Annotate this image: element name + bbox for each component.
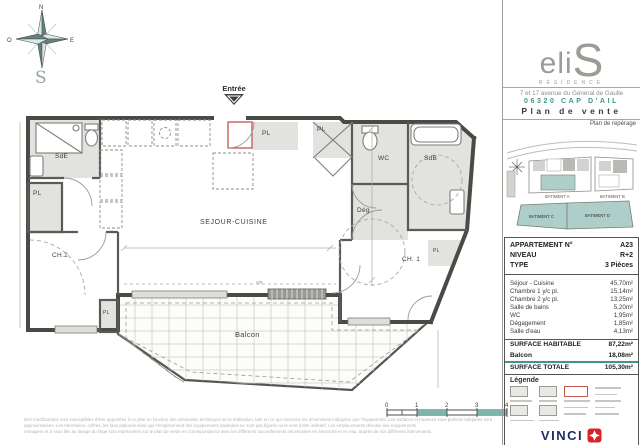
- site-map-block: Plan de repérage: [503, 120, 640, 236]
- area-row: Séjour - Cuisine45,70m²: [510, 280, 633, 288]
- room-label-wc: WC: [378, 155, 389, 162]
- area-row: WC1,95m²: [510, 312, 633, 320]
- area-value: 5,20m²: [614, 304, 633, 312]
- logo-subtitle: RÉSIDENCE: [539, 80, 604, 86]
- room-label-sejour-cuisine: SEJOUR-CUISINE: [200, 219, 268, 226]
- batiment-d-label: BATIMENT D: [585, 213, 610, 218]
- surface-balcon-row: Balcon18,08m²: [505, 351, 638, 362]
- surface-value: 105,30m²: [605, 363, 633, 374]
- area-row: Dégagement1,85m²: [510, 320, 633, 328]
- legend-item: [539, 386, 559, 423]
- kitchen-units: [100, 120, 253, 228]
- legend-item: [510, 386, 534, 423]
- surfaces-section: SURFACE HABITABLE87,22m² Balcon18,08m² S…: [505, 339, 638, 375]
- room-label-vr: VR: [256, 280, 263, 285]
- surface-label: Balcon: [510, 351, 532, 362]
- area-label: Salle de bains: [510, 304, 549, 312]
- info-row: APPARTEMENT N°A23: [510, 241, 633, 251]
- info-value: 3 Pièces: [605, 261, 633, 271]
- room-label-ch2: CH.2: [52, 252, 68, 259]
- legend-section: Légende: [505, 375, 638, 424]
- info-label: TYPE: [510, 261, 528, 271]
- address-city: 06320 CAP D'AIL: [505, 98, 638, 105]
- area-value: 13,25m²: [610, 296, 633, 304]
- disclaimer-line: ménagers et à ceux liés au lavage du lin…: [24, 429, 502, 435]
- info-label: APPARTEMENT N°: [510, 241, 573, 251]
- area-row: Chambre 1 y/c pl.15,14m²: [510, 288, 633, 296]
- info-value: A23: [620, 241, 633, 251]
- logo-text-end: S: [573, 43, 604, 79]
- info-value: R+2: [620, 251, 633, 261]
- area-value: 1,85m²: [614, 320, 633, 328]
- address-street: 7 et 17 avenue du Général de Gaulle: [505, 90, 638, 97]
- room-label-pl-entry: PL: [262, 130, 271, 137]
- area-row: Chambre 2 y/c pl.13,25m²: [510, 296, 633, 304]
- apartment-data-box: APPARTEMENT N°A23 NIVEAUR+2 TYPE3 Pièces…: [504, 237, 639, 445]
- plan-de-vente-page: N E O S Entrée: [0, 0, 640, 445]
- room-label-balcon: Balcon: [235, 330, 260, 339]
- vinci-flower-icon: [587, 428, 602, 443]
- batiment-a-shape: [529, 157, 591, 193]
- logo-wordmark: eliS: [540, 43, 604, 79]
- area-label: Chambre 1 y/c pl.: [510, 288, 559, 296]
- info-row: TYPE3 Pièces: [510, 261, 633, 271]
- info-row: NIVEAUR+2: [510, 251, 633, 261]
- scale-tick-0: 0: [385, 403, 389, 409]
- balcony-outline: [118, 295, 428, 390]
- area-value: 15,14m²: [610, 288, 633, 296]
- room-areas-section: Séjour - Cuisine45,70m² Chambre 1 y/c pl…: [505, 275, 638, 339]
- room-label-ch1: CH. 1: [402, 256, 420, 263]
- residence-logo: eliS RÉSIDENCE: [503, 0, 640, 88]
- legend-item: [564, 386, 590, 423]
- logo-text-start: eli: [540, 49, 573, 79]
- batiment-a-label: BATIMENT A: [545, 194, 570, 199]
- surface-value: 18,08m²: [608, 351, 633, 362]
- apartment-info-section: APPARTEMENT N°A23 NIVEAUR+2 TYPE3 Pièces: [505, 238, 638, 275]
- room-label-pl-ch2: PL: [103, 310, 110, 316]
- area-row: Salle d'eau4,13m²: [510, 328, 633, 336]
- legal-disclaimer: Des modifications sont susceptibles d'êt…: [24, 417, 502, 435]
- area-value: 1,95m²: [614, 312, 633, 320]
- site-map-drawing: BATIMENT A BATIMENT B BATIMENT C BATIMEN…: [505, 127, 639, 231]
- legend-title: Légende: [510, 377, 633, 384]
- vinci-wordmark: VINCI: [541, 429, 583, 442]
- area-value: 4,13m²: [614, 328, 633, 336]
- scale-tick-1: 1: [415, 403, 419, 409]
- title-block-sidebar: eliS RÉSIDENCE 7 et 17 avenue du Général…: [502, 0, 640, 445]
- area-value: 45,70m²: [610, 280, 633, 288]
- legend-item: [595, 386, 621, 423]
- batiment-b-shape: [595, 157, 633, 191]
- surface-value: 87,22m²: [608, 340, 633, 351]
- info-label: NIVEAU: [510, 251, 536, 261]
- document-title: Plan de vente: [505, 106, 638, 116]
- batiment-c-label: BATIMENT C: [529, 214, 554, 219]
- room-label-degagement: Dég.: [357, 207, 372, 214]
- room-label-pl-ch1: PL: [433, 248, 440, 254]
- scale-tick-3: 3: [475, 403, 479, 409]
- area-label: Salle d'eau: [510, 328, 540, 336]
- scale-tick-2: 2: [445, 403, 449, 409]
- batiment-b-label: BATIMENT B: [600, 194, 625, 199]
- room-label-sdb: SdB: [424, 155, 437, 162]
- area-label: Chambre 2 y/c pl.: [510, 296, 559, 304]
- surface-habitable-row: SURFACE HABITABLE87,22m²: [505, 339, 638, 351]
- room-label-pl-hall: PL: [33, 190, 42, 197]
- floor-plan-area: N E O S Entrée: [0, 0, 502, 445]
- room-label-sde: SdE: [55, 153, 68, 160]
- room-label-pl-closet: PL: [317, 126, 326, 133]
- legend-items: [510, 386, 633, 423]
- surface-label: SURFACE HABITABLE: [510, 340, 581, 351]
- surface-totale-row: SURFACE TOTALE105,30m²: [505, 361, 638, 375]
- area-label: Dégagement: [510, 320, 545, 328]
- area-row: Salle de bains5,20m²: [510, 304, 633, 312]
- surface-label: SURFACE TOTALE: [510, 363, 569, 374]
- area-label: WC: [510, 312, 520, 320]
- address-block: 7 et 17 avenue du Général de Gaulle 0632…: [503, 88, 640, 120]
- vinci-logo: VINCI: [505, 424, 638, 445]
- area-label: Séjour - Cuisine: [510, 280, 554, 288]
